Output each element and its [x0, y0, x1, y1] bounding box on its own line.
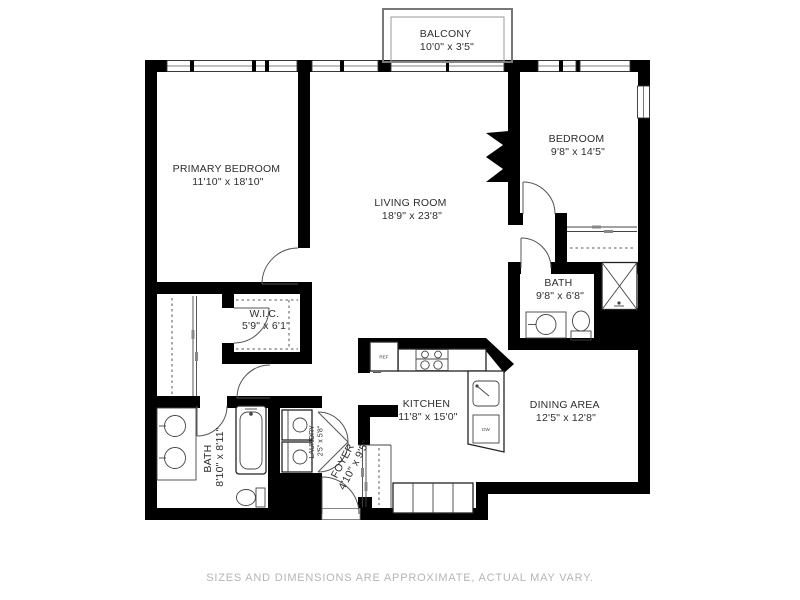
- laundry-fixtures: [282, 410, 312, 472]
- bathtub: [236, 406, 266, 474]
- wall-shower-left: [594, 262, 602, 312]
- svg-text:DINING AREA 12'5" x 12: DINING AREA 12'5" x 12'8": [530, 399, 602, 424]
- vanity-sink: [526, 312, 566, 338]
- wall-kitchen-stub: [358, 338, 370, 373]
- sliding-door-handle: [361, 468, 364, 477]
- room-label-wic: W.I.C. 5'9" x 6'1": [242, 308, 290, 332]
- shower: [602, 263, 637, 310]
- svg-text:BEDROOM 9'8" x 14'5": BEDROOM 9'8" x 14'5": [549, 133, 608, 158]
- door-bath-upper: [521, 238, 551, 268]
- wall-divider-primary: [298, 60, 310, 248]
- wall-bath2-top-left: [508, 262, 521, 274]
- entry-storage-row: [393, 483, 473, 513]
- room-label-primary-bedroom: PRIMARY BEDROOM 11'10" x 18'10": [173, 163, 284, 188]
- svg-text:W.I.C. 5'9" x 6'1": W.I.C. 5'9" x 6'1": [242, 308, 290, 332]
- wall-wic-left-a: [222, 294, 234, 308]
- wall-chase-zigzag: [486, 130, 520, 182]
- sliding-door-handle: [192, 330, 195, 339]
- room-label-living-room: LIVING ROOM 18'9" x 23'8": [374, 197, 449, 222]
- refrigerator-label: REF: [379, 355, 388, 360]
- door-hall: [237, 365, 270, 398]
- floorplan-drawing: DW REF: [0, 0, 800, 600]
- sliding-door-handle: [195, 352, 198, 361]
- svg-text:LAUNDRY 2'5" x 5'8": LAUNDRY 2'5" x 5'8": [309, 423, 325, 458]
- svg-text:BATH 9'8" x 6'8": BATH 9'8" x 6'8": [536, 277, 584, 302]
- wall-kitchen-foyer-v: [358, 405, 370, 445]
- toilet: [571, 311, 591, 340]
- room-label-bath-lower: BATH 8'10" x 8'11": [202, 427, 226, 486]
- vanity-double-sink: [157, 408, 196, 480]
- wall-foyer-left: [310, 473, 322, 513]
- svg-text:BATH 8'10" x 8'11": BATH 8'10" x 8'11": [202, 427, 226, 486]
- door-bedroom: [523, 182, 555, 214]
- sliding-door-handle: [592, 226, 601, 229]
- wall-wic-bottom: [222, 352, 312, 364]
- room-label-kitchen: KITCHEN 11'8" x 15'0": [398, 398, 457, 423]
- svg-text:PRIMARY BEDROOM 11'10": PRIMARY BEDROOM 11'10" x 18'10": [173, 163, 284, 188]
- svg-text:LIVING ROOM 18'9" x 23: LIVING ROOM 18'9" x 23'8": [374, 197, 449, 222]
- dishwasher-label: DW: [482, 427, 490, 432]
- room-label-balcony: BALCONY 10'0" x 3'5": [420, 28, 475, 53]
- bedroom-closet: [567, 226, 637, 249]
- counter-top-run: [398, 349, 486, 371]
- hall-closet: [172, 296, 198, 396]
- floorplan-canvas: DW REF: [0, 0, 800, 600]
- wall-shower-below: [594, 308, 638, 350]
- room-label-bedroom: BEDROOM 9'8" x 14'5": [549, 133, 608, 158]
- kitchen-fixtures: DW REF: [370, 342, 504, 452]
- room-label-dining-area: DINING AREA 12'5" x 12'8": [530, 399, 602, 424]
- washer: [282, 410, 312, 440]
- sliding-door-handle: [365, 482, 368, 491]
- dryer: [282, 442, 312, 472]
- svg-text:KITCHEN 11'8" x 15'0": KITCHEN 11'8" x 15'0": [398, 398, 457, 423]
- wall-bath1-top-left: [157, 396, 200, 408]
- toilet: [237, 488, 266, 507]
- disclaimer-text: SIZES AND DIMENSIONS ARE APPROXIMATE, AC…: [206, 572, 594, 584]
- sliding-door-handle: [604, 230, 613, 233]
- wall-bedroom-bottom: [508, 213, 523, 225]
- door-primary-bedroom: [262, 248, 298, 284]
- room-label-laundry: LAUNDRY 2'5" x 5'8": [309, 423, 325, 458]
- room-label-bath-upper: BATH 9'8" x 6'8": [536, 277, 584, 302]
- wall-bath1-right: [268, 396, 280, 508]
- svg-text:BALCONY 10'0" x 3'5": BALCONY 10'0" x 3'5": [420, 28, 475, 53]
